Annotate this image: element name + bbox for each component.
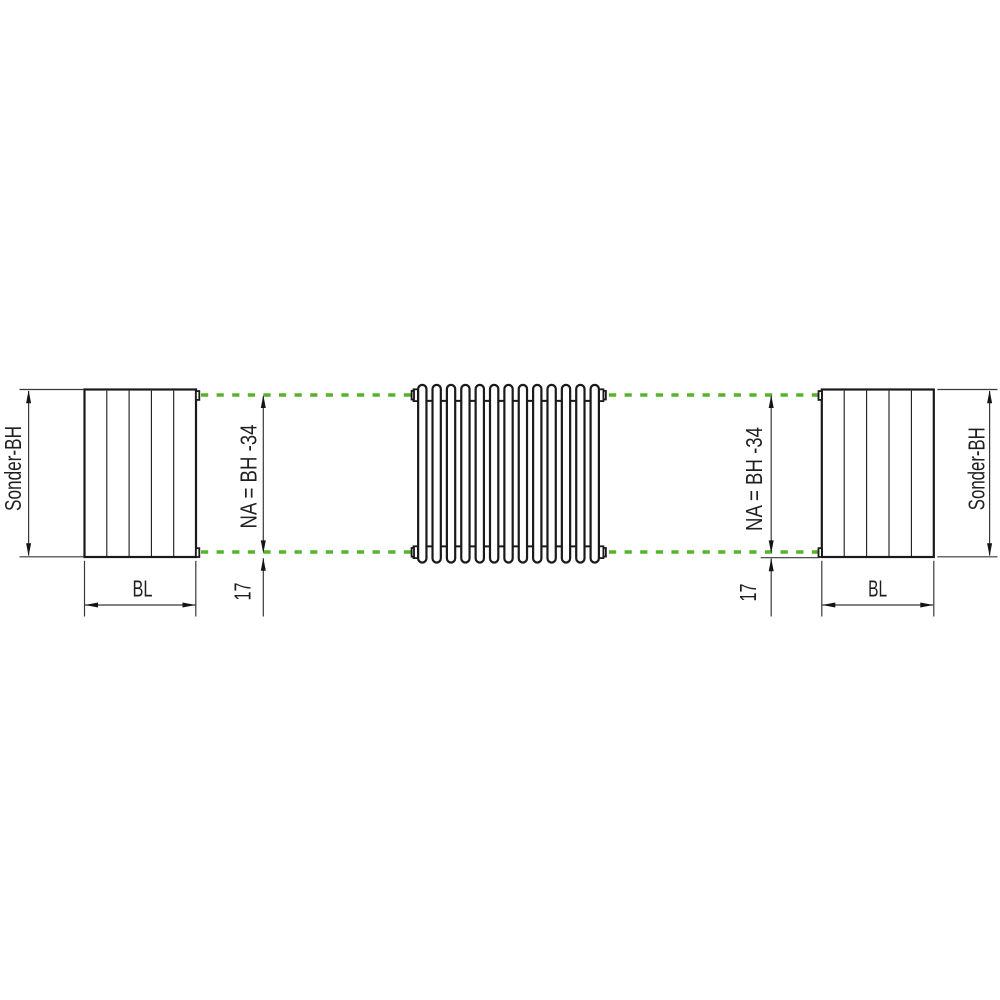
svg-text:17: 17 [230,583,256,601]
svg-text:NA = BH -34: NA = BH -34 [236,424,262,528]
svg-text:BL: BL [133,576,153,602]
svg-text:Sonder-BH: Sonder-BH [964,427,990,510]
svg-text:Sonder-BH: Sonder-BH [0,426,26,511]
svg-text:BL: BL [868,575,887,601]
svg-text:NA = BH -34: NA = BH -34 [741,427,767,531]
svg-text:17: 17 [735,584,761,602]
